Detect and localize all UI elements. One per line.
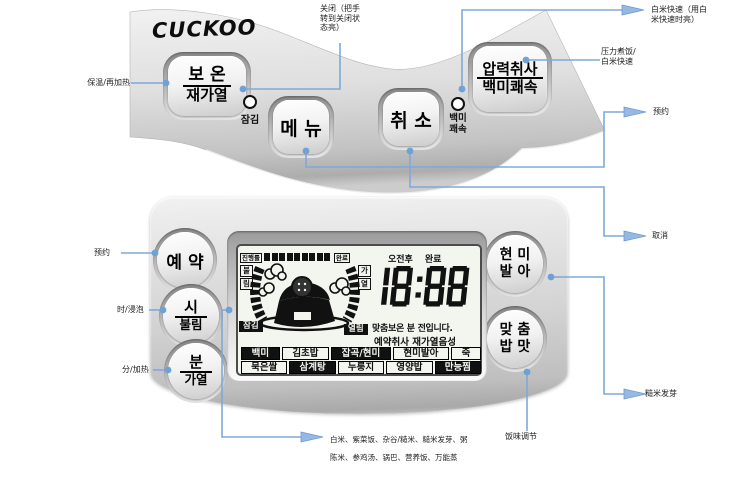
annotation-lock: 关闭（把手 转到关闭状 态亮） xyxy=(320,4,404,33)
pressure-cook-label-bottom: 백미쾌속 xyxy=(482,79,537,96)
annotation-cancel: 取消 xyxy=(652,231,668,241)
keep-warm-label-bottom: 재가열 xyxy=(186,87,227,104)
lcd-menu-item: 만능찜 xyxy=(435,361,481,374)
annotation-menu-items-line2: 陈米、参鸡汤、锅巴、营养饭、万能蒸 xyxy=(330,453,468,462)
lcd-message2: 예약취사 재가열음성 xyxy=(374,334,456,348)
hour-soak-label-bottom: 불림 xyxy=(179,318,202,332)
lcd-menu-item: 백미 xyxy=(241,347,280,360)
clock-digit xyxy=(423,266,446,306)
lcd-open-tag: 열림 xyxy=(344,324,368,335)
pressure-cook-label-top: 압력취사 xyxy=(477,62,542,80)
brown-rice-germination-label: 현 미 발 아 xyxy=(500,247,531,281)
pot-vent xyxy=(292,277,312,297)
annotation-minute-heat: 分/加热 xyxy=(122,365,149,375)
lock-indicator-light xyxy=(243,95,257,109)
annotation-keep-warm: 保温/再加热 xyxy=(58,78,130,88)
lcd-menu-row-2: 묵은쌀삼계탕누룽지영양밥만능찜 xyxy=(241,361,481,374)
pressure-cook-button[interactable]: 압력취사 백미쾌속 xyxy=(473,46,547,112)
custom-taste-button[interactable]: 맞 춤 밥 맛 xyxy=(487,310,543,368)
clock-digit xyxy=(446,266,469,306)
lcd-menu-item: 잡곡/현미 xyxy=(331,347,391,360)
rice-cooker-diagram: { "brand": { "logo": "CUCKOO" }, "colors… xyxy=(0,0,740,500)
hour-soak-label-top: 시 xyxy=(175,300,207,318)
lcd-menu-item: 죽 xyxy=(451,347,481,360)
keep-warm-button[interactable]: 보 온 재가열 xyxy=(168,56,246,116)
lcd-ampm: 오전후 xyxy=(388,252,413,265)
brown-rice-germination-button[interactable]: 현 미 발 아 xyxy=(487,235,543,293)
lock-indicator-label: 잠김 xyxy=(236,111,264,126)
vent-dot xyxy=(298,289,300,291)
lcd-lock-tag: 잠김 xyxy=(239,321,263,332)
annotation-preset-right: 预约 xyxy=(653,107,669,117)
clock-digit xyxy=(389,266,412,306)
hour-soak-button[interactable]: 시 불림 xyxy=(163,288,219,344)
lcd-clock xyxy=(367,266,470,308)
cancel-button-label: 취 소 xyxy=(390,106,432,133)
white-rice-quick-indicator-light xyxy=(451,97,465,111)
lcd-menu-item: 영양밥 xyxy=(386,361,432,374)
clock-digit xyxy=(367,266,390,306)
lcd-menu-item: 묵은쌀 xyxy=(241,361,287,374)
pot-window xyxy=(294,312,311,320)
minute-heat-button[interactable]: 분 가열 xyxy=(168,343,224,399)
custom-taste-label: 맞 춤 밥 맛 xyxy=(500,322,531,356)
menu-button[interactable]: 메 뉴 xyxy=(273,100,329,154)
lcd-done: 완료 xyxy=(425,252,442,265)
lcd-message1: 맞춤보온 분 전입니다. xyxy=(372,321,453,334)
lcd-menu-row-1: 백미김초밥잡곡/현미현미발아죽 xyxy=(241,347,481,360)
clock-colon xyxy=(412,266,424,306)
keep-warm-label-top: 보 온 xyxy=(183,67,230,87)
vent-dot xyxy=(304,289,306,291)
brand-logo: CUCKOO xyxy=(152,15,257,43)
preset-button-label: 예 약 xyxy=(166,248,203,273)
annotation-white-rice-quick: 白米快速（用白 米快速时亮） xyxy=(651,5,739,24)
minute-heat-label-bottom: 가열 xyxy=(184,373,207,387)
lcd-menu-item: 누룽지 xyxy=(338,361,384,374)
minute-heat-label-top: 분 xyxy=(180,355,212,373)
white-rice-quick-indicator-label: 백미 쾌속 xyxy=(443,113,473,135)
annotation-germination: 糙米发芽 xyxy=(645,389,677,399)
annotation-taste-adjust: 饭味调节 xyxy=(505,432,537,442)
vent-dot xyxy=(298,283,300,285)
annotation-menu-items: 白米、紫菜饭、杂谷/糙米、糙米发芽、粥 陈米、参鸡汤、锅巴、营养饭、万能蒸 xyxy=(330,426,468,471)
annotation-preset-left: 预约 xyxy=(94,248,110,258)
menu-button-label: 메 뉴 xyxy=(280,114,322,141)
preset-button[interactable]: 예 약 xyxy=(157,232,213,288)
lcd-menu-item: 현미발아 xyxy=(393,347,449,360)
lcd-menu-item: 삼계탕 xyxy=(289,361,335,374)
lcd-display: 진행률 완료 불림 가열 잠김 열림 오전후 완료 맞춤보온 분 전입니다. 예… xyxy=(236,244,482,376)
annotation-hour-soak: 时/浸泡 xyxy=(117,305,144,315)
lcd-menu-item: 김초밥 xyxy=(282,347,329,360)
cancel-button[interactable]: 취 소 xyxy=(383,92,439,146)
vent-dot xyxy=(304,283,306,285)
lcd-ampm-row: 오전후 완료 xyxy=(388,252,441,265)
pot-body xyxy=(274,297,335,327)
annotation-pressure-cook: 压力煮饭/ 白米快速 xyxy=(601,47,661,66)
annotation-menu-items-line1: 白米、紫菜饭、杂谷/糙米、糙米发芽、粥 xyxy=(330,435,468,444)
